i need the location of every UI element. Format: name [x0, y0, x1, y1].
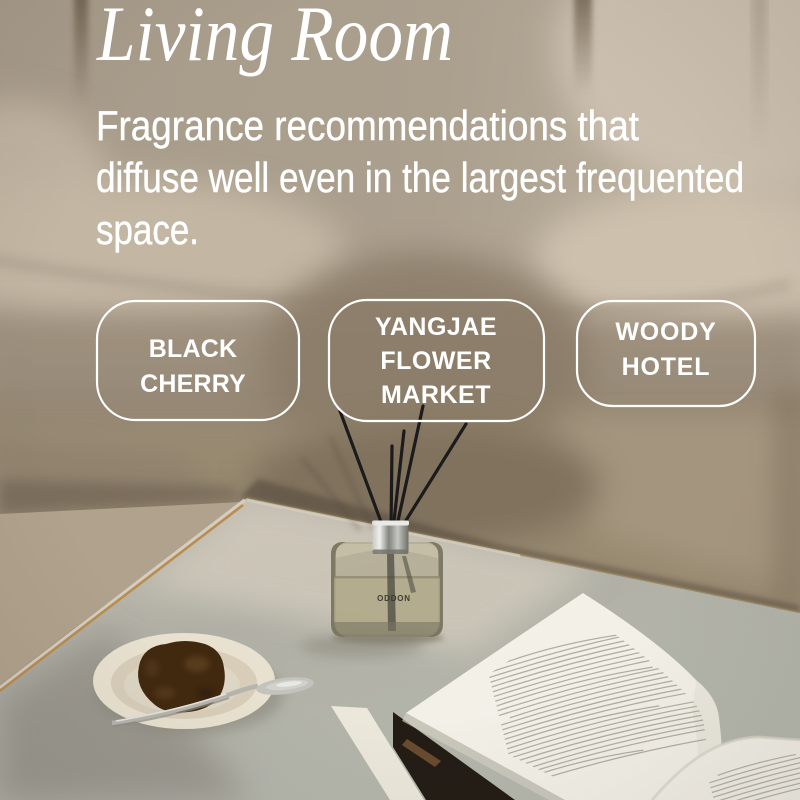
svg-text:BLACK: BLACK: [149, 335, 238, 363]
svg-text:diffuse well even in the large: diffuse well even in the largest frequen…: [96, 154, 744, 201]
svg-text:space.: space.: [96, 206, 199, 253]
svg-text:Living Room: Living Room: [96, 0, 453, 77]
svg-text:HOTEL: HOTEL: [622, 353, 711, 381]
svg-text:YANGJAE: YANGJAE: [375, 313, 497, 341]
svg-text:Fragrance recommendations that: Fragrance recommendations that: [96, 102, 639, 149]
svg-text:FLOWER: FLOWER: [380, 347, 491, 375]
svg-text:CHERRY: CHERRY: [140, 370, 246, 398]
svg-text:MARKET: MARKET: [381, 381, 491, 409]
svg-text:WOODY: WOODY: [615, 318, 716, 346]
